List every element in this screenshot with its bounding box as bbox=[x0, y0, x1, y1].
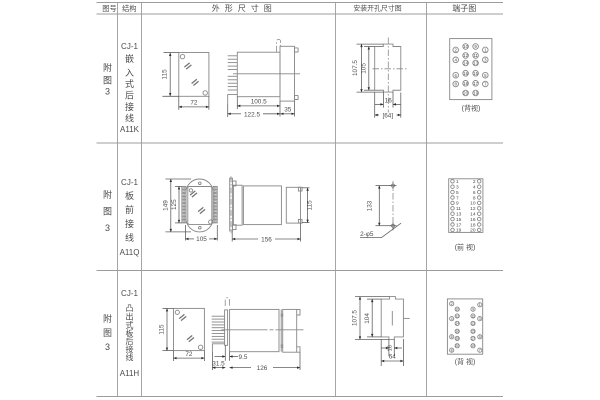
svg-text:16: 16 bbox=[463, 71, 468, 76]
svg-text:17: 17 bbox=[473, 81, 478, 86]
svg-text:附: 附 bbox=[103, 189, 112, 200]
svg-text:115: 115 bbox=[159, 324, 166, 335]
svg-text:3: 3 bbox=[105, 342, 110, 352]
svg-text:1: 1 bbox=[484, 48, 487, 53]
svg-text:图: 图 bbox=[103, 328, 112, 338]
svg-text:9: 9 bbox=[456, 201, 459, 207]
svg-text:形: 形 bbox=[225, 4, 233, 13]
svg-text:16: 16 bbox=[388, 345, 394, 351]
svg-text:104: 104 bbox=[364, 313, 371, 324]
svg-text:8: 8 bbox=[454, 82, 457, 87]
svg-text:20: 20 bbox=[470, 228, 476, 234]
svg-text:19: 19 bbox=[473, 91, 478, 96]
svg-text:19: 19 bbox=[471, 344, 475, 348]
svg-text:16: 16 bbox=[455, 330, 459, 334]
svg-text:105: 105 bbox=[361, 63, 368, 74]
svg-text:尺: 尺 bbox=[238, 4, 246, 13]
svg-text:5: 5 bbox=[456, 190, 459, 196]
svg-text:20: 20 bbox=[455, 344, 459, 348]
svg-text:2: 2 bbox=[454, 48, 457, 53]
svg-text:前: 前 bbox=[125, 204, 134, 215]
svg-text:8: 8 bbox=[451, 349, 453, 353]
svg-text:4: 4 bbox=[451, 317, 453, 321]
svg-text:安装开孔尺寸图: 安装开孔尺寸图 bbox=[353, 4, 401, 13]
svg-text:3: 3 bbox=[105, 223, 110, 233]
svg-text:72: 72 bbox=[190, 99, 198, 106]
svg-text:[64]: [64] bbox=[382, 112, 393, 119]
svg-text:9: 9 bbox=[474, 44, 477, 49]
svg-text:11: 11 bbox=[473, 53, 478, 58]
svg-text:3: 3 bbox=[456, 185, 459, 191]
svg-text:4: 4 bbox=[473, 185, 476, 191]
svg-text:13: 13 bbox=[456, 212, 462, 218]
svg-text:线: 线 bbox=[125, 113, 134, 124]
svg-text:(背视): (背视) bbox=[462, 103, 481, 112]
svg-text:125: 125 bbox=[171, 199, 178, 210]
svg-text:17: 17 bbox=[456, 222, 462, 228]
svg-text:10: 10 bbox=[470, 201, 476, 207]
svg-text:64: 64 bbox=[389, 354, 397, 361]
svg-text:13: 13 bbox=[473, 61, 478, 66]
svg-text:嵌: 嵌 bbox=[125, 54, 134, 64]
svg-text:115: 115 bbox=[161, 69, 168, 80]
svg-text:9.5: 9.5 bbox=[239, 354, 248, 361]
svg-text:5: 5 bbox=[484, 73, 487, 78]
svg-text:35: 35 bbox=[284, 106, 292, 113]
svg-text:附: 附 bbox=[103, 313, 112, 324]
svg-text:3: 3 bbox=[105, 87, 110, 97]
svg-text:6: 6 bbox=[473, 190, 476, 196]
svg-text:126: 126 bbox=[257, 365, 268, 372]
svg-text:式: 式 bbox=[125, 78, 134, 89]
svg-text:接: 接 bbox=[125, 101, 134, 112]
svg-text:156: 156 bbox=[261, 236, 272, 243]
svg-text:结构: 结构 bbox=[122, 4, 136, 13]
svg-text:板: 板 bbox=[125, 190, 134, 201]
svg-text:15: 15 bbox=[456, 217, 462, 223]
svg-text:2-φ5: 2-φ5 bbox=[360, 231, 374, 238]
svg-text:后: 后 bbox=[125, 91, 134, 101]
svg-text:线: 线 bbox=[125, 232, 134, 243]
svg-text:18: 18 bbox=[455, 337, 459, 341]
svg-text:5: 5 bbox=[479, 335, 481, 339]
svg-text:107.5: 107.5 bbox=[351, 310, 358, 326]
svg-text:13: 13 bbox=[471, 322, 475, 326]
svg-text:(背 视): (背 视) bbox=[455, 357, 476, 366]
svg-text:12: 12 bbox=[463, 53, 468, 58]
svg-text:2: 2 bbox=[473, 179, 476, 185]
svg-text:18: 18 bbox=[470, 222, 476, 228]
svg-text:15: 15 bbox=[471, 330, 475, 334]
svg-text:入: 入 bbox=[125, 68, 134, 78]
svg-text:1: 1 bbox=[479, 303, 481, 307]
svg-text:107.5: 107.5 bbox=[352, 60, 359, 76]
svg-text:CJ-1: CJ-1 bbox=[121, 178, 138, 187]
svg-text:A11K: A11K bbox=[120, 125, 140, 134]
svg-text:7: 7 bbox=[484, 82, 487, 87]
svg-text:图: 图 bbox=[103, 207, 112, 217]
svg-text:20: 20 bbox=[463, 91, 468, 96]
svg-text:15: 15 bbox=[473, 71, 478, 76]
svg-text:115: 115 bbox=[307, 200, 314, 211]
svg-text:133: 133 bbox=[366, 200, 373, 211]
svg-text:31.5: 31.5 bbox=[212, 361, 225, 368]
svg-text:(前 视): (前 视) bbox=[455, 242, 476, 251]
svg-text:端子图: 端子图 bbox=[452, 3, 476, 13]
svg-text:8: 8 bbox=[473, 195, 476, 201]
svg-text:CJ-1: CJ-1 bbox=[121, 42, 138, 51]
svg-text:3: 3 bbox=[484, 57, 487, 62]
svg-text:图: 图 bbox=[264, 4, 272, 13]
svg-text:11: 11 bbox=[456, 206, 461, 212]
svg-text:7: 7 bbox=[479, 349, 481, 353]
svg-text:105: 105 bbox=[196, 236, 207, 243]
svg-text:9: 9 bbox=[472, 308, 474, 312]
svg-text:72: 72 bbox=[185, 351, 193, 358]
svg-text:附: 附 bbox=[103, 62, 112, 73]
svg-text:18: 18 bbox=[463, 81, 468, 86]
svg-text:149: 149 bbox=[163, 200, 170, 211]
svg-text:图: 图 bbox=[103, 76, 112, 86]
svg-text:12: 12 bbox=[455, 314, 459, 318]
svg-text:寸: 寸 bbox=[251, 3, 259, 13]
svg-text:16: 16 bbox=[385, 97, 393, 104]
svg-text:14: 14 bbox=[470, 212, 476, 218]
svg-text:10: 10 bbox=[463, 44, 468, 49]
svg-text:出: 出 bbox=[126, 312, 134, 322]
svg-text:10: 10 bbox=[455, 308, 459, 312]
svg-text:19: 19 bbox=[456, 228, 462, 234]
svg-text:16: 16 bbox=[470, 217, 476, 223]
svg-text:1: 1 bbox=[456, 179, 459, 185]
svg-text:11: 11 bbox=[471, 314, 475, 318]
svg-text:6: 6 bbox=[454, 73, 457, 78]
svg-text:外: 外 bbox=[212, 3, 220, 13]
svg-text:接: 接 bbox=[125, 218, 134, 229]
svg-text:CJ-1: CJ-1 bbox=[121, 289, 138, 298]
svg-text:12: 12 bbox=[470, 206, 476, 212]
svg-text:6: 6 bbox=[451, 335, 453, 339]
svg-text:122.5: 122.5 bbox=[244, 111, 260, 118]
svg-text:4: 4 bbox=[454, 57, 457, 62]
svg-text:线: 线 bbox=[126, 352, 134, 362]
svg-text:7: 7 bbox=[456, 195, 459, 201]
svg-text:A11H: A11H bbox=[120, 369, 140, 378]
svg-text:3: 3 bbox=[479, 317, 481, 321]
svg-text:14: 14 bbox=[455, 322, 459, 326]
svg-text:A11Q: A11Q bbox=[120, 248, 140, 257]
svg-text:图号: 图号 bbox=[102, 4, 116, 13]
svg-text:14: 14 bbox=[463, 61, 468, 66]
svg-text:17: 17 bbox=[471, 337, 475, 341]
svg-text:2: 2 bbox=[451, 302, 453, 306]
svg-text:100.5: 100.5 bbox=[251, 98, 267, 105]
